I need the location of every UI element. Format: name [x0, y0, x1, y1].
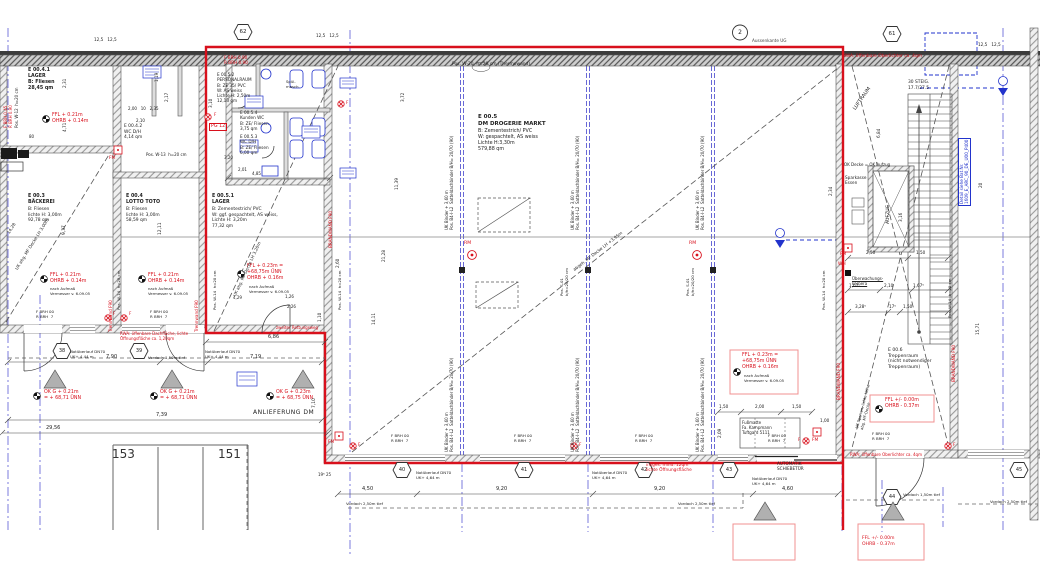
rwa-note-top: RWA: öffenbare Oberlichter ca. 4qm — [843, 54, 922, 60]
brandwand-label-1: BRANDWAND F90 — [328, 211, 333, 248]
dim-1139: 11,39 — [394, 178, 399, 190]
dim-150a: 1,50 — [916, 250, 925, 255]
vordach-250-a: Vordach 2,50m tief — [346, 502, 383, 507]
columns — [459, 267, 716, 273]
brh-note-f: F BRH 00 R BRH 7 — [768, 434, 786, 444]
ffl-note-e003: FFL + 0.21m OHRB + 0.14m — [50, 273, 86, 285]
dim-260: 2,60 — [335, 259, 340, 268]
room-label-e0052: E 00.5.2 PERSONALRAUM B: ZE 35/ PVC W: A… — [217, 72, 252, 104]
parking-stall-153: 153 — [112, 447, 135, 462]
dim-1571: 15,71 — [975, 323, 980, 335]
grid-marker-45: 45 — [1010, 467, 1028, 473]
okg-note-3: OK G + 0.23m = + 68,75 ÜNN — [276, 390, 313, 402]
dim-126: 1,26 — [285, 294, 294, 299]
dim-372: 3,72 — [400, 93, 405, 102]
sparkasse-label: Sparkasse Essen — [845, 175, 866, 186]
grid-marker-39: 39 — [130, 348, 148, 354]
vordach-150-a: Vordach 1,50m tief — [148, 356, 185, 361]
dim-316: 3,16 — [898, 213, 903, 222]
dim-162: 1,62⁵ — [849, 283, 860, 288]
pos-w13-label: Pos. W-13 h=20 cm — [146, 152, 187, 157]
aussenkante-label: Aussenkante UG — [752, 38, 787, 43]
floorplan-canvas: 62 2 61 38 39 40 41 42 43 44 45 153 151 … — [0, 0, 1040, 588]
rm-tag-1: RM — [464, 241, 471, 247]
thermowand-label: Pos. W-20 h=20 cm (Thermowand) — [452, 62, 530, 68]
pos-w14-note-5: Pos. W-14 h=20 cm — [948, 279, 953, 318]
pos-s01-note-2: Pos. S-01 b/h=20/20 cm — [686, 268, 696, 296]
rm-tag-2: RM — [689, 241, 696, 247]
dim-210-wc: 2,10 — [136, 118, 145, 123]
ffl-note-bottom: FFL +/- 0.00m OHRB - 0.37m — [862, 536, 895, 547]
rwa-note-treppenraum: RWA: öffenbare Oberlichter ca. 4qm — [850, 452, 922, 457]
dim-460: 4,60 — [782, 486, 793, 492]
dim-wc-row: 2,00 10 2,35 — [128, 106, 159, 111]
room-title-e004: E 00.4 LOTTO TOTO — [126, 194, 160, 206]
grid-marker-44: 44 — [883, 494, 901, 500]
dim-684: 6,84 — [876, 129, 881, 138]
dim-167: 1,67⁵ — [913, 283, 924, 288]
rwa-note-dach: RWA: öffenbare Dachfläche, lichte Öffnun… — [120, 331, 188, 341]
pos-w14-note-2: Pos. W-14 h=20 cm — [213, 271, 218, 310]
fm-tag-3: FM — [812, 438, 818, 444]
dim-150c: 1,50 — [719, 404, 728, 409]
ffl-note-e004: FFL + 0.21m OHRB + 0.14m — [148, 273, 184, 285]
pos-w12-label: Pos. W-12 h=20 cm — [14, 87, 19, 128]
dim-125a: 12,5 12,5 — [94, 37, 117, 42]
dim-429: 4,29 — [233, 295, 242, 300]
dim-125c: 12,5 12,5 — [978, 42, 1001, 47]
room-title-e0051: E 00.5.1 LAGER — [212, 194, 234, 206]
detail-ref-label: Detail siehe Bat.Nr. 1609_E_ARC_90_DE_U0… — [958, 138, 971, 206]
dim-920a: 9,20 — [496, 486, 507, 492]
binder-note-1: UK Binder + 3,60 m Pos. B4-I-L2 Sattelda… — [444, 136, 454, 230]
dim-201: 2,01 — [238, 167, 247, 172]
dim-150d: 1,50 — [792, 404, 801, 409]
brh-note-g: F BRH 00 R BRH 7 — [872, 432, 890, 442]
binder-note-2: UK Binder + 3,60 m Pos. B4-I-L2 Sattelda… — [570, 136, 580, 230]
shelf-boxes — [476, 198, 530, 308]
aufmass-note-e003: nach Aufmaß Vermesser v. 6.09.05 — [50, 287, 90, 296]
dim-17: 17⁵ — [889, 304, 896, 309]
brandwand-label-3: BRANDWAND F90 — [951, 345, 956, 382]
room-label-e0042: E 00.4.2 WC D/H 4,14 qm — [124, 124, 142, 141]
wh-tag: WH — [838, 262, 846, 268]
room-title-e005: E 00.5 DM DROGERIE MARKT — [478, 114, 546, 128]
brandwand-label-2: BRANDWAND F90 — [836, 363, 841, 400]
dim-200: 2,00 — [755, 404, 764, 409]
notueberlauf-a: Notüberlauf DN70 UK+ 4,44 m — [70, 350, 105, 360]
f-tag-4: F — [358, 442, 360, 447]
brh-note-e: F BRH 00 R BRH 7 — [635, 434, 653, 444]
binder-note-3: UK Binder + 3,60 m Pos. B4-I-L2 Sattelda… — [695, 136, 705, 230]
f-tag-1: F — [113, 311, 115, 316]
room-label-e0053: E 00.5.3 WC D/H B: ZE/ Fliesen 6,00 qm — [240, 134, 269, 155]
dim-231: 2,31 — [62, 79, 67, 88]
dim-234: 2,34 — [828, 187, 833, 196]
canopy-lines — [8, 358, 1038, 530]
f-tag-2: F — [129, 311, 131, 316]
stair-count-label: 30 STEIG. 17.7/27.5 — [908, 80, 929, 91]
dim-125b: 12,5 12,5 — [316, 33, 339, 38]
pos-w14-note-1: Pos. W-14 h=20 cm — [117, 271, 122, 310]
ffl-note-e006: FFL +/- 0.00m OHRB - 0.37m — [885, 398, 919, 410]
dim-790: 7,90 — [106, 354, 117, 360]
room-label-e006: E 00.6 Treppenraum (nicht notwendiger Tr… — [888, 348, 932, 371]
dim-119: 1,19 — [154, 73, 159, 82]
grid-marker-61: 61 — [883, 31, 901, 38]
room-body-e004: B: Fliesen lichte H: 3,00m 58,59 qm — [126, 207, 160, 224]
grid-marker-38: 38 — [53, 348, 71, 354]
f-tag-7: F — [953, 442, 955, 447]
dim-150b: 1,50 — [903, 304, 912, 309]
binder-note-5: UK Binder + 3,60 m Pos. B4-I-L2 Sattelda… — [570, 358, 580, 452]
fm-tag-1: FM — [109, 156, 115, 162]
dim-450: 4,50 — [362, 486, 373, 492]
room-label-e0041: E 00.4.1 LAGER B: Fliesen 28,45 qm — [28, 68, 55, 92]
vordach-250-b: Vordach 2,50m tief — [678, 502, 715, 507]
room-label-e0054: E 00.5.4 Kunden WC B: ZE/ Fliesen 3,75 q… — [240, 110, 269, 131]
dim-100: 1,00 — [820, 418, 829, 423]
aufmass-note-e0051: nach Aufmaß Vermesser v. 6.09.05 — [249, 285, 289, 294]
grid-marker-40: 40 — [393, 467, 411, 473]
dim-210: 2,10 — [884, 283, 893, 288]
dim-209: 2,09 — [717, 429, 722, 438]
dim-310: 3,10 — [208, 99, 213, 108]
dim-1211: 12,11 — [158, 222, 164, 235]
okg-note-2: OK G + 0.21m = + 68,71 ÜNN — [160, 390, 197, 402]
brh-note-a: F BRH 00 R BRH 7 — [36, 310, 54, 320]
notueberlauf-b: Notüberlauf DN70 UK+ 4,44 m — [205, 350, 240, 360]
aufmass-note-dm: nach Aufmaß Vermesser v. 6.09.05 — [744, 374, 784, 383]
ffl-note-e0051: FFL + 0.23m = +68,75m ÜNN OHRB + 0.16m — [247, 264, 283, 282]
room-body-e0051: B: Zementestrich/ PVC W: ggf. gespachtel… — [212, 207, 278, 229]
rettungsweg-note: zweiter Rettungsweg — [276, 325, 318, 330]
vordach-250-c: Vordach 2,50m tief — [990, 500, 1027, 505]
dim-1411: 14,11 — [371, 313, 376, 325]
label-spuelmaschine: Spül- masch. — [286, 80, 300, 89]
binder-note-6: UK Binder + 3,60 m Pos. B4-I-L2 Sattelda… — [695, 358, 705, 452]
ffl-note-dm: FFL + 0.23m = +68,75m ÜNN OHRB + 0.16m — [742, 353, 778, 371]
fm-tag-4: FM — [840, 252, 846, 258]
anlieferung-label: ANLIEFERUNG DM — [253, 409, 314, 417]
f-tag-3: F — [346, 100, 348, 105]
aufzug-label: AUFZUG — [886, 205, 892, 224]
dim-80: 80 — [29, 134, 34, 139]
dim-710: 7,10 — [312, 398, 318, 408]
brh-note-d: F BRH 00 R BRH 7 — [514, 434, 532, 444]
aufmass-note-e004: nach Aufmaß Vermesser v. 6.09.05 — [148, 287, 188, 296]
dim-719: 7,19 — [250, 354, 261, 360]
brh-note-c: F BRH 00 R BRH 7 — [391, 434, 409, 444]
automatik-tuer-label: AUTOMATIK SCHIEBETÜR — [777, 461, 804, 472]
dim-686: 6,86 — [268, 334, 279, 340]
vordach-150-b: Vordach 1,50m tief — [903, 493, 940, 498]
stairs — [908, 94, 952, 344]
grid-marker-41: 41 — [515, 467, 533, 473]
brh-note-left: F BRH 0.45 R BRH 0.90 — [3, 105, 13, 128]
f-tag-6: F — [798, 437, 800, 442]
dim-320: 3,20 — [224, 155, 233, 160]
grid-marker-62: 62 — [234, 29, 252, 36]
fm-tag-2: FM — [328, 440, 334, 446]
okg-note-1: OK G + 0.21m = + 68,71 ÜNN — [44, 390, 81, 402]
dim-920b: 9,20 — [654, 486, 665, 492]
grid-marker-2: 2 — [731, 29, 749, 37]
notueberlauf-c: Notüberlauf DN70 UK+ 4,64 m — [416, 471, 451, 481]
ffl-note-e0041: FFL + 0.21m OHRB + 0.14m — [52, 113, 88, 125]
room-body-e005: B: Zementestrich/ PVC W: gespachtelt, AS… — [478, 129, 538, 153]
pos-w14-note-3: Pos. W-14 h=20 cm — [338, 271, 343, 310]
pos-s01-note-1: Pos. S-01 b/h=20/20 cm — [560, 268, 570, 296]
brh-note-b: F BRH 00 R BRH 7 — [150, 310, 168, 320]
binder-note-4: UK Binder + 3,60 m Pos. B4-I-L2 Sattelda… — [444, 358, 454, 452]
notueberlauf-d: Notüberlauf DN70 UK+ 4,64 m — [592, 471, 627, 481]
parking-stall-151: 151 — [218, 447, 241, 462]
brh-note-090: F BRH 0.90 R BRH 0.90 — [224, 55, 248, 66]
dim-485: 4,85 — [252, 171, 261, 176]
room-title-e003: E 00.3 BÄCKEREI — [28, 194, 55, 206]
dim-2956: 29,56 — [46, 425, 60, 431]
dim-195-25: 19⁵ 25 — [318, 472, 331, 477]
dim-226: 2,26 — [287, 304, 296, 309]
dim-937: 9,37 — [62, 225, 68, 235]
dim-739: 7,39 — [156, 412, 167, 418]
dim-471: 4,71 — [62, 123, 67, 132]
dim-20: 20 — [978, 183, 983, 188]
trennwand-label-2: Trennwand F90 — [194, 300, 199, 332]
dim-217: 2,17 — [164, 93, 169, 102]
dim-250: 2,50 — [866, 250, 875, 255]
dim-328: 3,28⁵ — [855, 304, 866, 309]
dim-110: 1,10 — [317, 313, 322, 322]
f-tag-8: F — [214, 112, 216, 117]
grid-marker-43: 43 — [720, 467, 738, 473]
pos-w14-note-4: Pos. W-14 h=20 cm — [822, 271, 827, 310]
dim-2128: 21,28 — [381, 250, 386, 262]
oeffnungsflaeche-note: insges. mind. 12qm lichte Öffnungsfläche — [646, 463, 692, 474]
ok-decke-label: OK Decke = OK Aufzug — [844, 162, 890, 167]
pg12-tag: PG 12 — [209, 123, 227, 131]
